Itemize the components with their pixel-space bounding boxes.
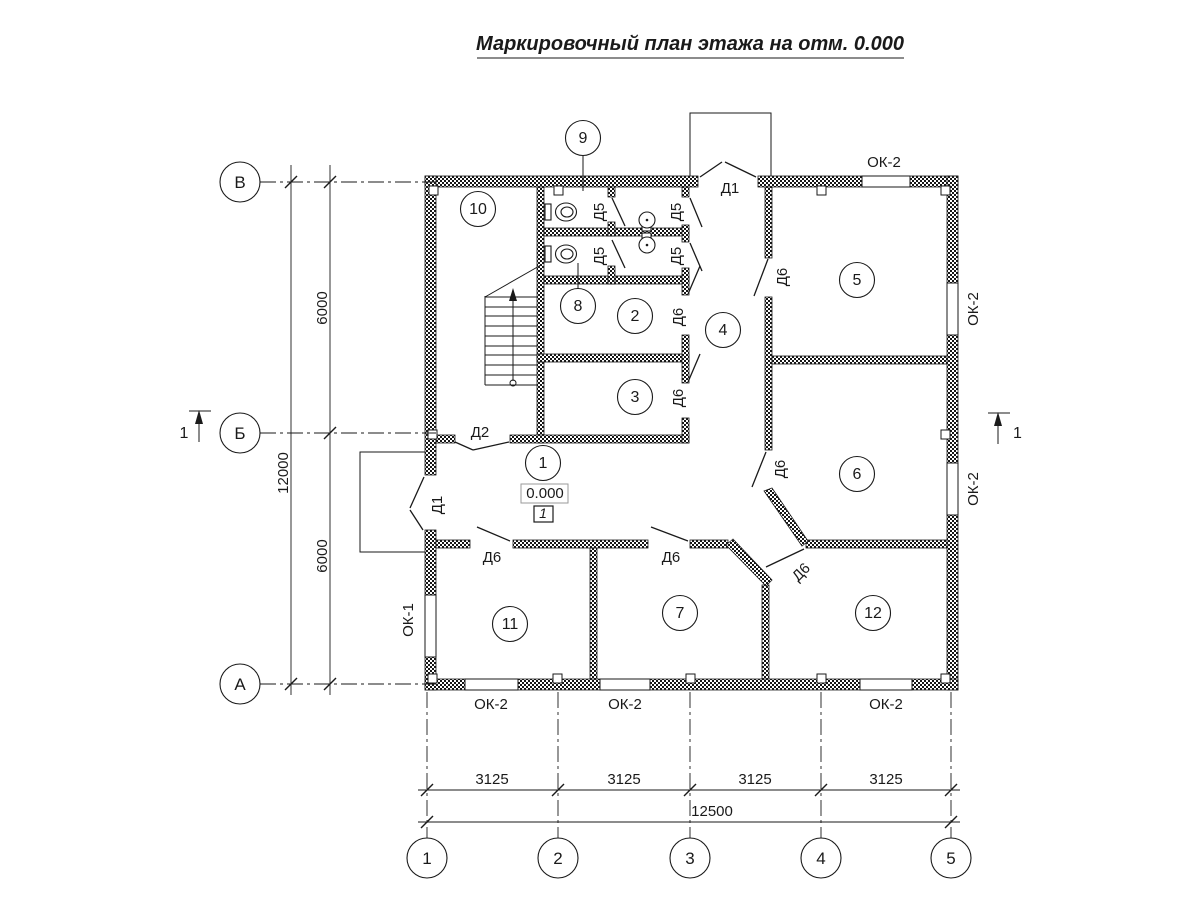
- dim-text-3125: 3125: [738, 771, 771, 788]
- wall-segment: [510, 435, 689, 443]
- door-leaf-d1-west: [410, 510, 423, 530]
- room-bubble-11: 11: [493, 607, 528, 642]
- column-marker: [686, 674, 695, 683]
- wall-segment: [513, 540, 648, 548]
- column-marker: [941, 674, 950, 683]
- room-bubble-1: 1: [526, 446, 561, 481]
- door-label-d6: Д6: [774, 268, 791, 287]
- window-ok2-bottom-2: [600, 679, 650, 690]
- wall-segment: [608, 222, 615, 236]
- dim-text-3125: 3125: [869, 771, 902, 788]
- door-leaf-d6: [752, 452, 766, 487]
- column-marker: [428, 430, 437, 439]
- axis-label: А: [234, 675, 246, 694]
- section-arrow-left: 1: [180, 410, 211, 442]
- axis-bubble-5: 5: [931, 838, 971, 878]
- axis-bubble-3: 3: [670, 838, 710, 878]
- door-leaf-d5: [612, 240, 625, 268]
- door-leaf-d5: [690, 198, 702, 227]
- door-leaf-d1-west: [410, 477, 424, 508]
- wall-segment: [425, 176, 698, 187]
- room-label: 10: [469, 201, 487, 218]
- wall-segment: [806, 540, 947, 548]
- door-label-d1: Д1: [429, 496, 446, 515]
- section-label: 1: [1013, 425, 1022, 442]
- room-label: 6: [853, 466, 862, 483]
- column-marker: [941, 430, 950, 439]
- wall-segment: [765, 297, 772, 450]
- wall-segment: [772, 356, 947, 364]
- window-ok1-left: [425, 595, 436, 657]
- axis-label: 4: [816, 849, 825, 868]
- wall-segment: [544, 228, 689, 236]
- wall-segment: [436, 540, 470, 548]
- column-marker: [553, 674, 562, 683]
- wall-segment: [690, 540, 728, 548]
- axis-label: 3: [685, 849, 694, 868]
- axis-bubble-v: В: [220, 162, 260, 202]
- door-label-d5: Д5: [591, 247, 608, 266]
- wall-segment: [608, 187, 615, 197]
- room-bubble-5: 5: [840, 263, 875, 298]
- room-bubble-7: 7: [663, 596, 698, 631]
- door-labels: Д1 Д1 Д2 Д5 Д5 Д5 Д5 Д6 Д6 Д6 Д6 Д6 Д6 Д…: [429, 180, 814, 585]
- door-leaf-d6: [477, 527, 510, 541]
- floor-mark-value: 1: [539, 505, 547, 521]
- room-label: 4: [719, 322, 728, 339]
- section-arrow-right: 1: [988, 412, 1022, 444]
- room-bubble-10: 10: [461, 192, 496, 227]
- room-bubble-9: 9: [566, 121, 601, 156]
- section-arrow-icon: [994, 412, 1002, 426]
- door-label-d6: Д6: [483, 549, 502, 566]
- door-leaf-d2: [473, 442, 509, 450]
- door-label-d6: Д6: [670, 389, 687, 408]
- diagonal-wall-segment: [764, 488, 808, 546]
- column-axes: 3125 3125 3125 3125 12500 1 2 3 4 5: [407, 692, 971, 878]
- wall-segment: [608, 266, 615, 284]
- page-title: Маркировочный план этажа на отм. 0.000: [476, 33, 904, 55]
- door-label-d6: Д6: [662, 549, 681, 566]
- wall-segment: [947, 515, 958, 690]
- room-bubble-2: 2: [618, 299, 653, 334]
- window-label-ok2: ОК-2: [867, 154, 901, 171]
- axis-label: 2: [553, 849, 562, 868]
- dim-text-3125: 3125: [475, 771, 508, 788]
- stair-up-arrow-icon: [509, 288, 517, 301]
- wall-segment: [682, 268, 689, 295]
- column-marker: [554, 186, 563, 195]
- room-label: 2: [631, 308, 640, 325]
- axis-bubble-4: 4: [801, 838, 841, 878]
- wall-segment: [682, 418, 689, 443]
- dim-text-12000: 12000: [275, 452, 292, 494]
- window-label-ok2: ОК-2: [965, 472, 982, 506]
- door-label-d5: Д5: [668, 247, 685, 266]
- wall-segment: [762, 585, 769, 679]
- window-ok2-right-upper: [947, 283, 958, 335]
- diagonal-wall-segment: [726, 539, 772, 586]
- window-ok2-top: [862, 176, 910, 187]
- window-ok2-bottom-1: [465, 679, 518, 690]
- room-label: 3: [631, 389, 640, 406]
- axis-bubble-b: Б: [220, 413, 260, 453]
- wall-segment: [537, 354, 689, 362]
- door-label-d2: Д2: [471, 424, 490, 441]
- wall-segment: [590, 548, 597, 679]
- wall-segment: [912, 679, 958, 690]
- door-leaf-d6: [651, 527, 688, 541]
- west-porch-outline: [360, 452, 425, 552]
- door-label-d6: Д6: [789, 560, 814, 585]
- window-label-ok1: ОК-1: [400, 603, 417, 637]
- window-ok2-bottom-3: [860, 679, 912, 690]
- room-label: 8: [574, 298, 583, 315]
- axis-bubble-2: 2: [538, 838, 578, 878]
- door-leaf-d6: [754, 259, 768, 296]
- door-label-d5: Д5: [591, 203, 608, 222]
- wall-segment: [758, 176, 862, 187]
- toilet-icon: [545, 203, 577, 221]
- room-label: 7: [676, 605, 685, 622]
- window-label-ok2: ОК-2: [869, 696, 903, 713]
- door-leaf-d1-entrance: [725, 162, 756, 177]
- wall-segment: [947, 335, 958, 463]
- axis-label: В: [234, 173, 245, 192]
- room-bubble-8: 8: [561, 289, 596, 324]
- axis-bubble-a: А: [220, 664, 260, 704]
- room-bubble-6: 6: [840, 457, 875, 492]
- room-label: 9: [579, 130, 588, 147]
- door-label-d6: Д6: [772, 460, 789, 479]
- dim-text-6000: 6000: [314, 539, 331, 572]
- door-label-d5: Д5: [668, 203, 685, 222]
- column-marker: [941, 186, 950, 195]
- window-label-ok2: ОК-2: [474, 696, 508, 713]
- wall-segment: [544, 276, 689, 284]
- staircase: [485, 265, 541, 386]
- wall-segment: [436, 435, 455, 443]
- section-arrow-icon: [195, 410, 203, 424]
- north-porch-outline: [690, 113, 771, 176]
- door-leaf-d6: [688, 354, 700, 382]
- axis-label: Б: [234, 424, 245, 443]
- column-marker: [428, 674, 437, 683]
- wall-segment: [425, 530, 436, 595]
- axis-label: 5: [946, 849, 955, 868]
- door-leaf-d2: [455, 442, 473, 450]
- door-leaf-d6: [688, 266, 700, 294]
- room-bubble-4: 4: [706, 313, 741, 348]
- room-bubble-12: 12: [856, 596, 891, 631]
- dim-text-3125: 3125: [607, 771, 640, 788]
- window-label-ok2: ОК-2: [965, 292, 982, 326]
- room-label: 12: [864, 605, 882, 622]
- elevation-value: 0.000: [526, 485, 564, 502]
- section-label: 1: [180, 425, 189, 442]
- door-label-d6: Д6: [670, 308, 687, 327]
- wall-segment: [682, 187, 689, 197]
- column-marker: [429, 186, 438, 195]
- wall-segment: [537, 187, 544, 443]
- column-marker: [817, 674, 826, 683]
- drawing-title: Маркировочный план этажа на отм. 0.000: [476, 33, 904, 58]
- floor-plan-canvas: Маркировочный план этажа на отм. 0.000: [0, 0, 1200, 900]
- window-label-ok2: ОК-2: [608, 696, 642, 713]
- room-label: 5: [853, 272, 862, 289]
- toilet-icon: [545, 245, 577, 263]
- room-label: 1: [539, 455, 548, 472]
- axis-label: 1: [422, 849, 431, 868]
- dim-text-12500: 12500: [691, 803, 733, 820]
- door-leaf-d1-entrance: [700, 162, 722, 177]
- wall-segment: [765, 187, 772, 258]
- dim-text-6000: 6000: [314, 291, 331, 324]
- wall-segment: [650, 679, 860, 690]
- window-ok2-right-lower: [947, 463, 958, 515]
- axis-bubble-1: 1: [407, 838, 447, 878]
- room-bubble-3: 3: [618, 380, 653, 415]
- door-label-d1: Д1: [721, 180, 740, 197]
- column-marker: [817, 186, 826, 195]
- wall-segment: [682, 335, 689, 383]
- floor-plan-page: Маркировочный план этажа на отм. 0.000: [0, 0, 1200, 900]
- wall-segment: [682, 225, 689, 242]
- room-label: 11: [502, 616, 519, 633]
- elevation-mark: 0.000 1: [521, 484, 568, 522]
